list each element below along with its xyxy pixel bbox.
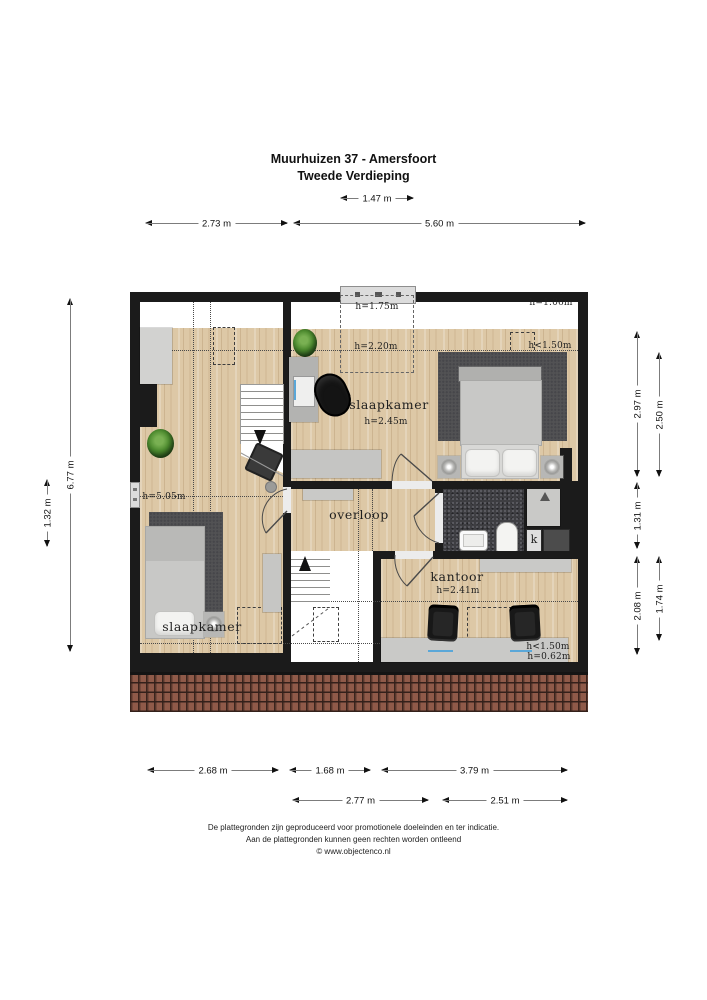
- dimension-label: 2.50 m: [654, 396, 665, 433]
- dimension-left-total: 6.77 m: [64, 298, 77, 652]
- dimension-left-window: 1.32 m: [41, 479, 54, 547]
- copyright: © www.objectenco.nl: [0, 847, 707, 856]
- dimension-right-bedroom-inner: 2.50 m: [653, 352, 666, 477]
- dimension-label: 1.31 m: [632, 497, 643, 534]
- annotation-h150-bedroom: h<1.50m: [528, 341, 571, 351]
- annotation-h220: h=2.20m: [354, 342, 397, 352]
- dimension-label: 2.77 m: [342, 795, 379, 806]
- dimension-label: 1.32 m: [42, 494, 53, 531]
- page-subtitle: Tweede Verdieping: [0, 169, 707, 183]
- disclaimer-line-1: De plattegronden zijn geproduceerd voor …: [0, 823, 707, 832]
- dimension-bottom-stairs: 1.68 m: [289, 764, 371, 777]
- dimension-label: 2.97 m: [632, 385, 643, 422]
- dimension-label: 2.08 m: [632, 587, 643, 624]
- left-bedroom-height: h=5.05m: [142, 492, 185, 502]
- dimension-label: 1.74 m: [654, 580, 665, 617]
- dimension-label: 1.68 m: [311, 765, 348, 776]
- dimension-bottom-office: 3.79 m: [381, 764, 568, 777]
- dimension-label: 5.60 m: [421, 218, 458, 229]
- closet-label: k: [531, 533, 538, 546]
- annotation-h175: h=1.75m: [355, 302, 398, 312]
- dimension-right-office: 2.08 m: [631, 556, 644, 655]
- dimension-top-right: 5.60 m: [293, 217, 586, 230]
- dimension-bottom-left-room: 2.68 m: [147, 764, 279, 777]
- disclaimer-line-2: Aan de plattegronden kunnen geen rechten…: [0, 835, 707, 844]
- dimension-right-bedroom: 2.97 m: [631, 331, 644, 477]
- left-bedroom-label: slaapkamer: [162, 619, 242, 634]
- office-label: kantoor: [430, 569, 483, 584]
- dimension-label: 2.51 m: [486, 795, 523, 806]
- page-title: Muurhuizen 37 - Amersfoort: [0, 152, 707, 166]
- dimension-bottom-bathroom: 2.51 m: [442, 794, 568, 807]
- floorplan: slaapkamer h=5.05m slaapkamer h=2.45m ov…: [130, 292, 588, 672]
- right-bedroom-height: h=2.45m: [364, 417, 407, 427]
- floorplan-page: Muurhuizen 37 - Amersfoort Tweede Verdie…: [0, 0, 707, 1000]
- dimension-label: 6.77 m: [65, 456, 76, 493]
- dimension-right-office-inner: 1.74 m: [653, 556, 666, 641]
- dimension-label: 3.79 m: [456, 765, 493, 776]
- dimension-label: 1.47 m: [358, 193, 395, 204]
- office-height: h=2.41m: [436, 586, 479, 596]
- dimension-window-width: 1.47 m: [340, 192, 414, 205]
- dimension-bottom-landing: 2.77 m: [292, 794, 429, 807]
- dimension-label: 2.73 m: [198, 218, 235, 229]
- landing-label: overloop: [329, 507, 389, 522]
- annotation-h062: h=0.62m: [527, 652, 570, 662]
- annotation-h150-office: h<1.50m: [526, 642, 569, 652]
- dimension-label: 2.68 m: [194, 765, 231, 776]
- annotation-h106: h=1.06m: [529, 298, 572, 308]
- dimension-right-bathroom: 1.31 m: [631, 482, 644, 549]
- roof-tiles: [130, 672, 588, 712]
- dimension-top-left: 2.73 m: [145, 217, 288, 230]
- right-bedroom-label: slaapkamer: [349, 397, 429, 412]
